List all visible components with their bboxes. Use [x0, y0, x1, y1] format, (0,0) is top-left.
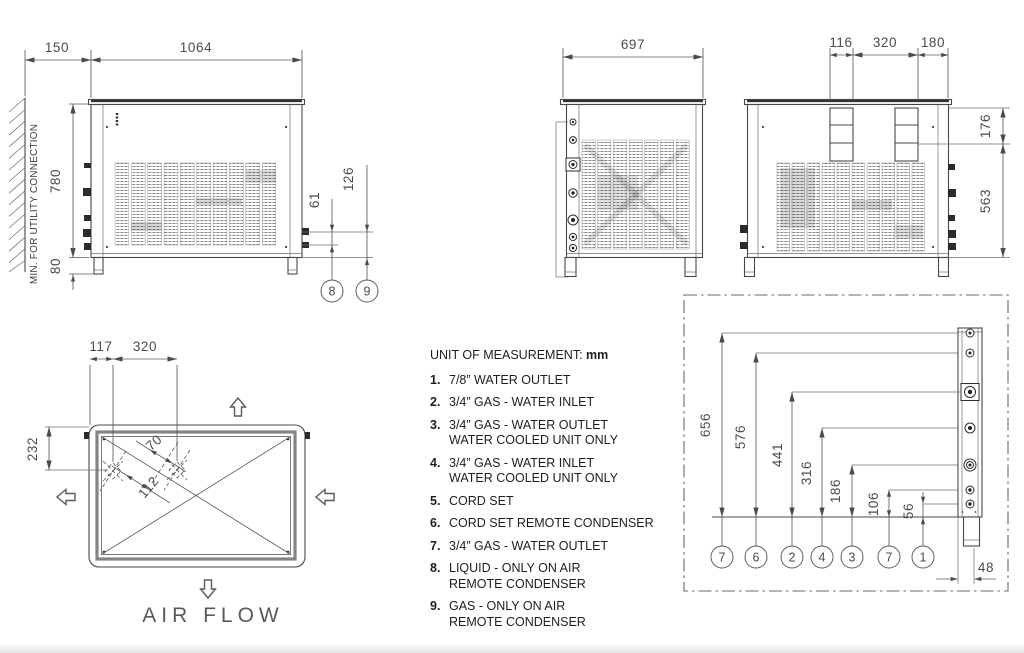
- rear-legs: [745, 258, 949, 277]
- front-legs: [94, 258, 297, 275]
- legend-item-number: 7.: [430, 539, 449, 555]
- dim-label-80: 80: [48, 258, 63, 274]
- legend-item-text: 7/8” WATER OUTLET: [449, 373, 571, 389]
- dim-wall-clearance: 150: [25, 40, 302, 98]
- wall-hatching: [9, 98, 25, 272]
- detail-callout-2: 2: [789, 551, 796, 565]
- legend-item-text: CORD SET: [449, 494, 514, 510]
- side-grille: [582, 140, 689, 249]
- legend-item-text: 3/4” GAS - WATER OUTLET: [449, 539, 608, 555]
- detail-dim-lines: 656 576 441 316 186 106 56: [698, 333, 923, 531]
- dim-label-112: 112: [135, 473, 161, 501]
- dim-label-316: 316: [799, 461, 814, 485]
- legend-item-1: 1. 7/8” WATER OUTLET: [430, 373, 690, 389]
- legend-item-number: 6.: [430, 516, 449, 532]
- legend-item-number: 1.: [430, 373, 449, 389]
- legend-item-text: GAS - ONLY ON AIR: [449, 599, 586, 615]
- top-diagonals: [102, 437, 290, 554]
- callout-label-9: 9: [364, 285, 371, 299]
- legend-item-number: 5.: [430, 494, 449, 510]
- dim-label-576: 576: [733, 425, 748, 449]
- legend-item-text: 3/4” GAS - WATER INLET: [449, 395, 594, 411]
- dim-label-780: 780: [48, 169, 63, 193]
- dim-label-1064: 1064: [180, 40, 212, 55]
- legend-item-4: 4. 3/4” GAS - WATER INLETWATER COOLED UN…: [430, 456, 690, 487]
- legend-item-6: 6. CORD SET REMOTE CONDENSER: [430, 516, 690, 532]
- fan-pivot-markers: [103, 460, 187, 481]
- legend: UNIT OF MEASUREMENT: mm 1. 7/8” WATER OU…: [430, 348, 690, 637]
- legend-item-text: 3/4” GAS - WATER OUTLET: [449, 418, 618, 434]
- dim-label-697: 697: [621, 37, 645, 52]
- callout-label-8: 8: [329, 285, 336, 299]
- rear-right-ports: [948, 164, 956, 250]
- detail-callout-1: 6: [753, 551, 760, 565]
- dim-label-441: 441: [770, 443, 785, 467]
- detail-connection-panel: [958, 328, 982, 546]
- top-diagonal-dims: 70 112: [100, 432, 190, 503]
- side-view: 697: [556, 37, 706, 277]
- airflow-arrow-left-icon: [57, 490, 75, 505]
- dim-label-56: 56: [901, 503, 916, 519]
- detail-callout-4: 3: [849, 551, 856, 565]
- dim-label-320-rear: 320: [873, 35, 897, 50]
- top-view: 117 320 232 70 112 AIR FLOW: [25, 339, 334, 627]
- legend-item-5: 5. CORD SET: [430, 494, 690, 510]
- legend-item-number: 9.: [430, 599, 449, 630]
- legend-header-unit: mm: [586, 348, 608, 362]
- legend-item-number: 3.: [430, 418, 449, 449]
- air-flow-label: AIR FLOW: [142, 604, 284, 627]
- rear-top-dims: 116 320 180: [829, 35, 948, 106]
- legend-item-2: 2. 3/4” GAS - WATER INLET: [430, 395, 690, 411]
- dim-label-116: 116: [829, 35, 852, 50]
- dim-label-176: 176: [978, 114, 993, 138]
- side-legs: [565, 258, 696, 277]
- legend-item-text: 3/4” GAS - WATER INLET: [449, 456, 618, 472]
- detail-view: 656 576 441 316 186 106 56 7 6 2 4 3 7 1: [684, 295, 1008, 591]
- dim-label-186: 186: [828, 479, 843, 503]
- detail-callout-6: 1: [920, 551, 927, 565]
- airflow-arrow-down-icon: [201, 580, 216, 598]
- legend-item-text2: WATER COOLED UNIT ONLY: [449, 433, 618, 449]
- technical-drawing-canvas: MIN. FOR UTILITY CONNECTION 150 1064: [0, 0, 1024, 653]
- legend-item-text2: WATER COOLED UNIT ONLY: [449, 471, 618, 487]
- dim-label-656: 656: [698, 413, 713, 437]
- legend-header-label: UNIT OF MEASUREMENT:: [430, 348, 583, 362]
- front-left-ports: [83, 163, 91, 250]
- front-view: MIN. FOR UTILITY CONNECTION 150 1064: [9, 40, 378, 302]
- dim-liquid-gas-offsets: 61 126 8 9: [302, 165, 378, 302]
- dim-label-70: 70: [143, 432, 165, 454]
- dim-label-180: 180: [921, 35, 945, 50]
- rear-view: 116 320 180: [740, 35, 1010, 277]
- legend-header: UNIT OF MEASUREMENT: mm: [430, 348, 690, 364]
- legend-item-9: 9. GAS - ONLY ON AIRREMOTE CONDENSER: [430, 599, 690, 630]
- legend-item-number: 4.: [430, 456, 449, 487]
- bottom-shadow-bar: [0, 644, 1024, 653]
- dim-label-61: 61: [307, 192, 322, 208]
- airflow-arrow-up-icon: [231, 398, 246, 416]
- dim-label-117: 117: [89, 339, 112, 354]
- legend-item-text: LIQUID - ONLY ON AIR: [449, 561, 586, 577]
- detail-ref-lines: [722, 333, 961, 504]
- detail-callouts: 7 6 2 4 3 7 1: [711, 517, 934, 568]
- detail-callout-0: 7: [719, 551, 726, 565]
- airflow-arrow-right-side-icon: [316, 490, 334, 505]
- dim-leg-height: 80: [48, 249, 94, 290]
- detail-callout-3: 4: [819, 551, 826, 565]
- legend-item-text2: REMOTE CONDENSER: [449, 577, 586, 593]
- legend-item-3: 3. 3/4” GAS - WATER OUTLETWATER COOLED U…: [430, 418, 690, 449]
- legend-item-text: CORD SET REMOTE CONDENSER: [449, 516, 654, 532]
- dim-label-150: 150: [45, 40, 69, 55]
- dim-label-232: 232: [25, 437, 40, 461]
- legend-item-8: 8. LIQUID - ONLY ON AIRREMOTE CONDENSER: [430, 561, 690, 592]
- dim-unit-depth: 697: [563, 37, 703, 98]
- dim-unit-height: 780: [48, 104, 89, 258]
- dim-unit-width: 1064: [91, 40, 302, 60]
- dim-label-106: 106: [866, 492, 881, 516]
- dim-label-48: 48: [978, 560, 994, 575]
- legend-item-number: 2.: [430, 395, 449, 411]
- dim-label-563: 563: [978, 189, 993, 213]
- legend-item-7: 7. 3/4” GAS - WATER OUTLET: [430, 539, 690, 555]
- rear-left-ports: [740, 225, 748, 249]
- legend-item-number: 8.: [430, 561, 449, 592]
- detail-callout-5: 7: [886, 551, 893, 565]
- legend-item-text2: REMOTE CONDENSER: [449, 615, 586, 631]
- dim-label-320-top: 320: [133, 339, 157, 354]
- dim-label-126: 126: [341, 167, 356, 191]
- utility-connection-note: MIN. FOR UTILITY CONNECTION: [29, 124, 40, 284]
